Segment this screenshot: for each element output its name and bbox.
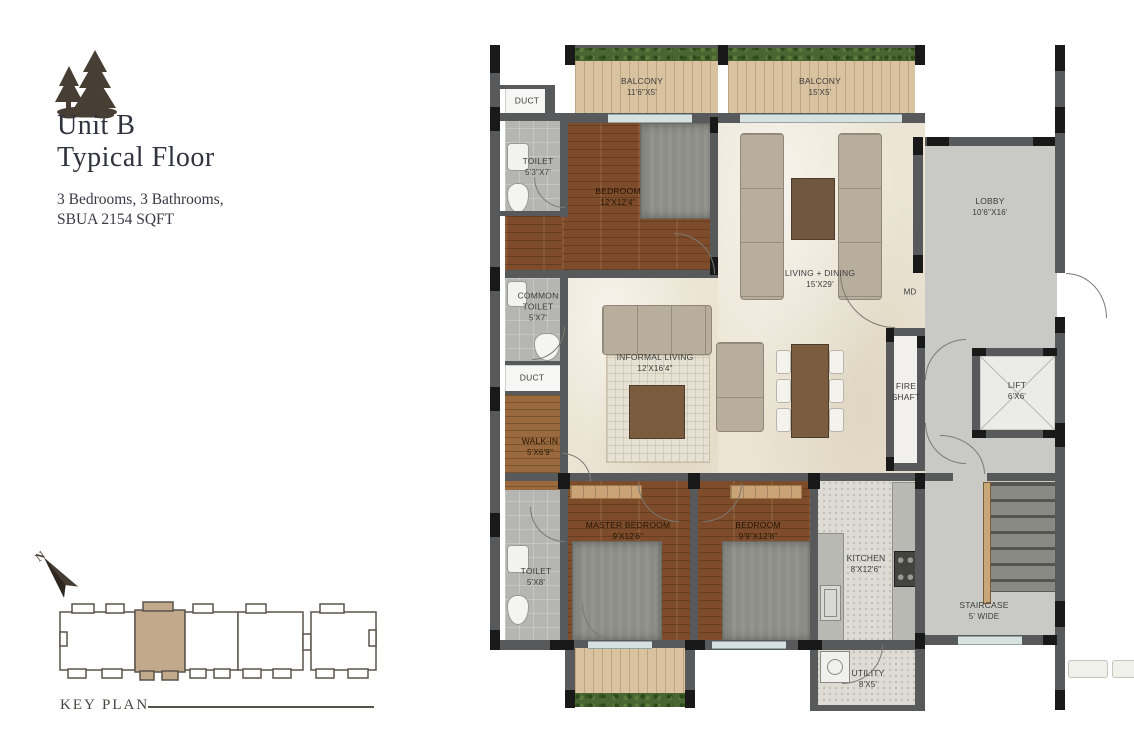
wardrobe-master bbox=[570, 485, 642, 499]
column-block bbox=[685, 690, 695, 708]
room-label-fire-shaft: FIRESHAFT bbox=[892, 381, 921, 403]
wall-segment bbox=[810, 481, 818, 643]
column-block bbox=[565, 45, 575, 65]
dining-chair bbox=[776, 408, 791, 432]
room-label-lobby: LOBBY10'6"X16' bbox=[972, 196, 1007, 218]
column-block bbox=[565, 690, 575, 708]
column-block bbox=[688, 473, 700, 489]
room-label-staircase: STAIRCASE5' WIDE bbox=[959, 600, 1008, 622]
sofa-left bbox=[740, 133, 784, 300]
wall-segment bbox=[987, 473, 1057, 481]
room-label-utility: UTILITY8'X5' bbox=[851, 668, 884, 690]
dining-table bbox=[791, 344, 829, 438]
rear-balcony-floor bbox=[575, 643, 685, 695]
pillow bbox=[1068, 660, 1108, 678]
room-label-common-toilet: COMMONTOILET 5'X7' bbox=[518, 291, 559, 324]
informal-coffee-table bbox=[629, 385, 685, 439]
column-block bbox=[1043, 348, 1057, 356]
dining-chair bbox=[776, 379, 791, 403]
page-title: Unit B Typical Floor bbox=[57, 110, 215, 174]
room-label-master-bedroom: MASTER BEDROOM9'X12'6" bbox=[586, 520, 671, 542]
rear-balcony-planter bbox=[575, 693, 685, 707]
column-block bbox=[915, 473, 925, 489]
room-label-lift: LIFT6'X6' bbox=[1008, 380, 1026, 402]
room-label-informal-living: INFORMAL LIVING12'X16'4" bbox=[617, 352, 694, 374]
column-block bbox=[798, 640, 822, 650]
floor-plan: BALCONY11'6"X5' BALCONY15'X5' DUCT TOILE… bbox=[490, 45, 1110, 713]
column-block bbox=[1033, 137, 1055, 146]
title-line-2: Typical Floor bbox=[57, 142, 215, 173]
title-line-1: Unit B bbox=[57, 110, 135, 141]
bed-master-bedroom bbox=[572, 541, 662, 641]
dining-chair bbox=[776, 350, 791, 374]
wall-segment bbox=[1055, 317, 1065, 710]
column-block bbox=[972, 430, 986, 438]
column-block bbox=[490, 107, 500, 131]
stair-treads bbox=[990, 482, 1056, 592]
column-block bbox=[685, 640, 705, 650]
wall-segment bbox=[500, 113, 562, 121]
column-block bbox=[1055, 601, 1065, 627]
key-plan-label: KEY PLAN bbox=[60, 697, 149, 714]
column-block bbox=[915, 633, 925, 649]
wall-segment bbox=[1055, 45, 1065, 273]
column-block bbox=[1055, 690, 1065, 710]
wall-segment bbox=[690, 481, 698, 643]
column-block bbox=[490, 387, 500, 411]
column-block bbox=[490, 267, 500, 291]
room-label-bedroom-2: BEDROOM9'9"X12'8" bbox=[735, 520, 780, 542]
room-label-balcony-1: BALCONY11'6"X5' bbox=[621, 76, 663, 98]
room-label-toilet-1: TOILET5'3"X7' bbox=[523, 156, 554, 178]
stove-hob bbox=[894, 551, 917, 587]
column-block bbox=[490, 45, 500, 73]
column-block bbox=[490, 513, 500, 537]
room-label-walk-in: WALK-IN5'X6'9" bbox=[522, 436, 559, 458]
column-block bbox=[972, 348, 986, 356]
coffee-table bbox=[791, 178, 835, 240]
door-swing-arc bbox=[1066, 273, 1107, 318]
dining-chair bbox=[829, 408, 844, 432]
column-block bbox=[915, 45, 925, 65]
informal-sofa-top bbox=[602, 305, 712, 355]
bed-bedroom-2 bbox=[722, 541, 812, 641]
column-block bbox=[710, 117, 718, 133]
wall-segment bbox=[913, 137, 923, 273]
subtitle-line-1: 3 Bedrooms, 3 Bathrooms, bbox=[57, 191, 224, 208]
dining-chair bbox=[829, 350, 844, 374]
window bbox=[712, 641, 786, 649]
column-block bbox=[1043, 430, 1057, 438]
room-label-kitchen: KITCHEN8'X12'6" bbox=[847, 553, 886, 575]
column-block bbox=[913, 255, 923, 273]
pillow bbox=[1112, 660, 1134, 678]
column-block bbox=[917, 336, 925, 348]
column-block bbox=[1055, 45, 1065, 71]
column-block bbox=[927, 137, 949, 146]
key-plan-diagram bbox=[58, 596, 378, 692]
subtitle-line-2: SBUA 2154 SQFT bbox=[57, 211, 174, 228]
room-label-toilet-2: TOILET5'X8' bbox=[521, 566, 552, 588]
wall-segment bbox=[810, 643, 818, 711]
wall-segment bbox=[505, 391, 560, 395]
column-block bbox=[1055, 317, 1065, 333]
column-block bbox=[886, 457, 894, 471]
room-label-duct-2: DUCT bbox=[520, 373, 544, 384]
label-main-door: MD bbox=[904, 287, 917, 298]
column-block bbox=[913, 137, 923, 155]
column-block bbox=[808, 473, 820, 489]
wall-segment bbox=[815, 705, 925, 711]
bed-bedroom-1 bbox=[640, 123, 716, 219]
window bbox=[608, 114, 692, 123]
column-block bbox=[550, 640, 574, 650]
room-label-duct-1: DUCT bbox=[515, 96, 539, 107]
window bbox=[740, 114, 902, 123]
dining-chair bbox=[829, 379, 844, 403]
wall-segment bbox=[490, 45, 500, 650]
floor-plan-page: Unit B Typical Floor 3 Bedrooms, 3 Bathr… bbox=[0, 0, 1134, 753]
wall-segment bbox=[500, 211, 560, 216]
room-label-living-dining: LIVING + DINING15'X29' bbox=[785, 268, 855, 290]
column-block bbox=[718, 45, 728, 65]
page-subtitle: 3 Bedrooms, 3 Bathrooms, SBUA 2154 SQFT bbox=[57, 190, 224, 230]
room-label-bedroom-1: BEDROOM12'X12'4" bbox=[595, 186, 640, 208]
wall-segment bbox=[915, 481, 925, 711]
window bbox=[588, 641, 652, 649]
room-label-balcony-2: BALCONY15'X5' bbox=[799, 76, 841, 98]
column-block bbox=[490, 630, 500, 650]
svg-text:N: N bbox=[34, 548, 48, 565]
window bbox=[958, 636, 1022, 645]
stair-railing bbox=[983, 482, 991, 604]
key-plan-rule bbox=[148, 706, 374, 708]
wall-segment bbox=[925, 473, 953, 481]
column-block bbox=[1043, 635, 1057, 645]
wall-segment bbox=[710, 117, 718, 275]
bedroom-1-passage-floor bbox=[505, 216, 562, 272]
wall-segment bbox=[565, 45, 925, 48]
column-block bbox=[1055, 107, 1065, 133]
wall-segment bbox=[505, 361, 560, 365]
kitchen-sink bbox=[820, 585, 841, 621]
informal-sofa-side bbox=[716, 342, 764, 432]
column-block bbox=[886, 328, 894, 342]
wall-segment bbox=[972, 348, 980, 438]
